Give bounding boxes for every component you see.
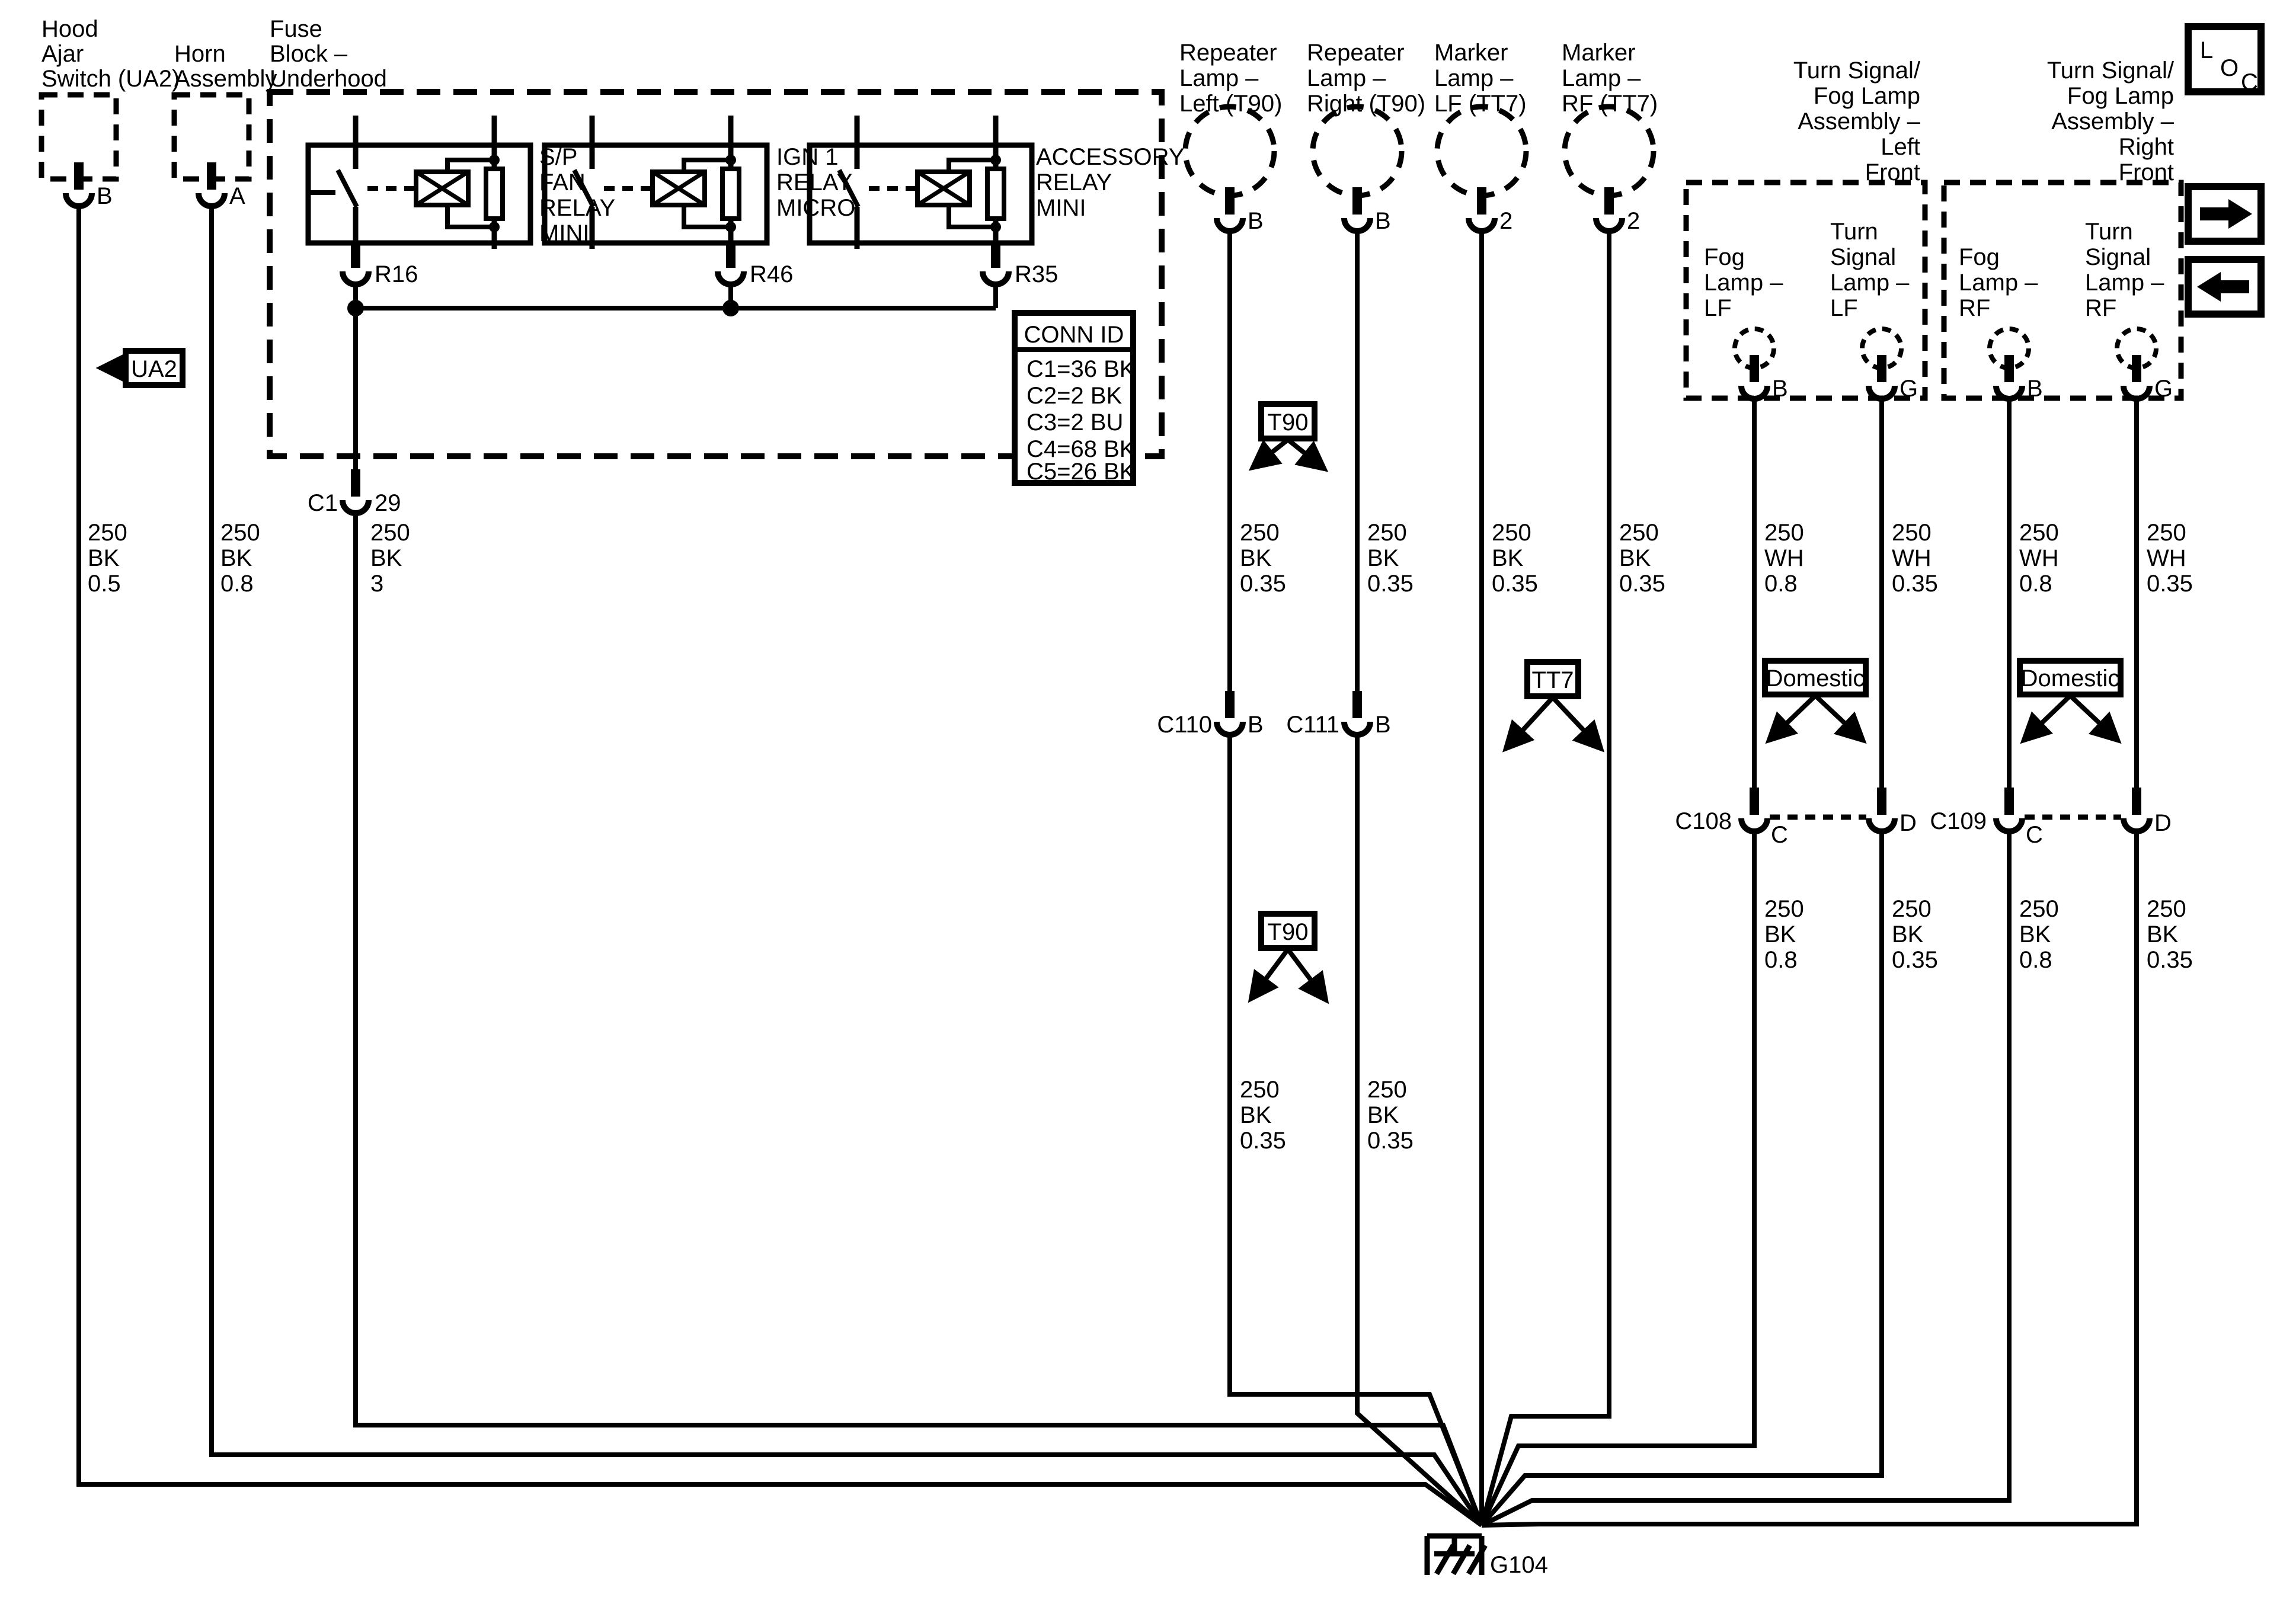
wire-label: 0.35: [2147, 571, 2193, 597]
table-header: CONN ID: [1024, 322, 1124, 348]
component-label: Lamp –: [1179, 65, 1259, 91]
wire-label: BK: [1367, 1102, 1399, 1128]
loc-letter-l: L: [2200, 37, 2213, 63]
loc-letter-c: C: [2241, 69, 2258, 95]
sub-turn-signal-lamp-rf: Turn Signal Lamp – RF G: [2085, 219, 2173, 402]
component-label: LF: [1704, 295, 1732, 321]
wire-label: WH: [1892, 545, 1932, 571]
pin-label: R16: [375, 261, 418, 287]
pin-label: G: [2154, 376, 2173, 402]
wire-label: BK: [2019, 921, 2051, 948]
pin-label: R46: [750, 261, 793, 287]
sub-fog-lamp-rf: Fog Lamp – RF B: [1959, 244, 2043, 402]
component-label: Lamp –: [1704, 270, 1783, 296]
wire-label: 250: [1764, 520, 1804, 546]
wire-label: 250: [220, 520, 260, 546]
connector-label: C109: [1930, 808, 1987, 834]
pin-label: B: [1248, 208, 1264, 234]
relay-label: RELAY: [539, 195, 615, 221]
wire-label: 250: [2019, 520, 2059, 546]
relay-label: RELAY: [1036, 169, 1112, 196]
callout-label: UA2: [131, 356, 177, 382]
relay-accessory: ACCESSORY RELAY MINI R35: [810, 116, 1184, 287]
wire-label: 250: [1892, 520, 1932, 546]
wire-label: BK: [2147, 921, 2179, 948]
component-label: Lamp –: [1830, 270, 1910, 296]
harness-label: TT7: [1531, 667, 1574, 693]
sub-turn-signal-lamp-lf: Turn Signal Lamp – LF G: [1830, 219, 1918, 402]
component-label: RF: [2085, 295, 2116, 321]
component-label: Fog Lamp: [1814, 83, 1920, 109]
component-label: Turn Signal/: [1793, 57, 1921, 84]
component-label: Right (T90): [1307, 91, 1425, 117]
component-label: Marker: [1562, 40, 1635, 66]
wire-label: 0.35: [1367, 571, 1414, 597]
component-label: Marker: [1434, 40, 1508, 66]
component-fuse-block-underhood: Fuse Block – Underhood S/P FAN RELAY MIN…: [270, 16, 1184, 485]
wire-label: 0.35: [2147, 947, 2193, 973]
wire-label: 0.5: [88, 571, 121, 597]
component-label: LF (TT7): [1434, 91, 1527, 117]
component-label: Lamp –: [2085, 270, 2164, 296]
pin-label: D: [2154, 810, 2172, 836]
pin-label: B: [97, 183, 113, 209]
wire-label: BK: [1619, 545, 1651, 571]
component-label: Turn Signal/: [2047, 57, 2175, 84]
wire-label: BK: [1764, 921, 1796, 948]
wire-label: 250: [1492, 520, 1531, 546]
wire-label: 250: [1764, 896, 1804, 922]
wire-label: BK: [1492, 545, 1524, 571]
component-label: Signal: [2085, 244, 2151, 270]
component-label: Left: [1881, 134, 1920, 160]
wire-labels-right-lower: 250 BK 0.8 250 BK 0.35 250 BK 0.8 250 BK…: [1764, 896, 2193, 973]
wire-label: 0.8: [1764, 571, 1798, 597]
table-row: C5=26 BK: [1027, 459, 1136, 485]
component-label: Lamp –: [1434, 65, 1514, 91]
harness-tag-domestic-left: Domestic: [1765, 661, 1866, 740]
wire-label: 250: [2019, 896, 2059, 922]
wire-label: BK: [1892, 921, 1924, 948]
pin-label: R35: [1015, 261, 1058, 287]
component-label: Turn: [1830, 219, 1878, 245]
connector-label: C110: [1157, 712, 1212, 738]
pin-label: G: [1900, 376, 1918, 402]
harness-label: Domestic: [2021, 665, 2120, 692]
relay-label: MICRO: [776, 195, 855, 221]
conn-id-table: CONN ID C1=36 BK C2=2 BK C3=2 BU C4=68 B…: [1015, 313, 1136, 485]
wire-label: 250: [1619, 520, 1659, 546]
component-label: Assembly –: [2051, 108, 2174, 135]
component-label: Horn: [174, 41, 226, 67]
component-label: Underhood: [270, 66, 387, 92]
ground-label: G104: [1490, 1552, 1548, 1578]
component-label: Assembly –: [1798, 108, 1920, 135]
wire-label: BK: [88, 545, 120, 571]
wire-label: 0.35: [1619, 571, 1665, 597]
component-horn-assembly: Horn Assembly A 250 BK 0.8: [174, 41, 277, 597]
component-label: Left (T90): [1179, 91, 1282, 117]
component-label: RF (TT7): [1562, 91, 1658, 117]
table-row: C3=2 BU: [1027, 409, 1123, 436]
wire-label: BK: [220, 545, 252, 571]
pin-label: A: [229, 183, 245, 209]
component-marker-lamp-rf: Marker Lamp – RF (TT7) 2 250 BK 0.35: [1562, 40, 1665, 597]
wire-label: 0.35: [1492, 571, 1538, 597]
wire-label: 250: [2147, 520, 2186, 546]
harness-tag-t90-upper: T90: [1253, 404, 1323, 468]
relay-label: MINI: [1036, 195, 1086, 221]
component-label: Front: [2119, 159, 2174, 185]
component-label: Fog: [1959, 244, 2000, 270]
component-label: Fog: [1704, 244, 1745, 270]
component-label: Repeater: [1179, 40, 1277, 66]
nav-arrow-right[interactable]: [2188, 187, 2261, 241]
component-hood-ajar-switch: Hood Ajar Switch (UA2) B 250 BK 0.5: [41, 16, 180, 597]
wire-label: 250: [88, 520, 127, 546]
harness-tag-domestic-right: Domestic: [2020, 661, 2121, 740]
pin-label: B: [2027, 376, 2043, 402]
pin-label: B: [1375, 208, 1391, 234]
pin-label: B: [1772, 376, 1788, 402]
pin-label: D: [1900, 810, 1917, 836]
wire-label: WH: [2019, 545, 2059, 571]
harness-tag-t90-lower: T90: [1252, 914, 1325, 999]
ua2-callout: UA2: [102, 351, 183, 385]
component-marker-lamp-lf: Marker Lamp – LF (TT7) 2 250 BK 0.35: [1434, 40, 1538, 597]
component-label: Lamp –: [1562, 65, 1641, 91]
wire-label: WH: [2147, 545, 2186, 571]
wire-label: BK: [1240, 1102, 1272, 1128]
wire-label: 0.35: [1240, 1128, 1286, 1154]
component-label: Fog Lamp: [2067, 83, 2174, 109]
component-label: Turn: [2085, 219, 2133, 245]
wiring-diagram: Hood Ajar Switch (UA2) B 250 BK 0.5 Horn…: [0, 0, 2296, 1610]
component-label: Switch (UA2): [41, 66, 180, 92]
wire-label: 0.8: [220, 571, 254, 597]
wire-label: 250: [1240, 520, 1280, 546]
component-label: Hood: [41, 16, 98, 42]
harness-label: T90: [1268, 919, 1309, 945]
wire-label: BK: [370, 545, 402, 571]
wire-label: 250: [1367, 1077, 1407, 1103]
component-repeater-lamp-left: Repeater Lamp – Left (T90) B 250 BK 0.35…: [1157, 40, 1286, 1154]
nav-arrow-left[interactable]: [2188, 260, 2261, 314]
wire-label: 0.35: [1367, 1128, 1414, 1154]
component-label: RF: [1959, 295, 1990, 321]
pin-label: 29: [375, 490, 401, 516]
loc-badge: L O C: [2188, 27, 2261, 95]
loc-letter-o: O: [2220, 55, 2239, 81]
table-row: C2=2 BK: [1027, 383, 1123, 409]
wire-label: 0.8: [2019, 947, 2052, 973]
component-label: LF: [1830, 295, 1858, 321]
connector-label: C111: [1286, 712, 1339, 738]
ground-icon: [1427, 1536, 1485, 1575]
connector-label: C1: [308, 490, 338, 516]
wire-label: BK: [1367, 545, 1399, 571]
component-label: Right: [2119, 134, 2174, 160]
connector-c1: C1 29 250 BK 3: [308, 469, 410, 597]
wire-label: 250: [370, 520, 410, 546]
pin-label: C: [1771, 822, 1788, 848]
component-label: Assembly: [174, 66, 277, 92]
ground-g104: G104: [1427, 1536, 1548, 1578]
wire-label: 250: [1892, 896, 1932, 922]
component-label: Lamp –: [1307, 65, 1386, 91]
component-label: Block –: [270, 41, 348, 67]
harness-label: T90: [1268, 409, 1309, 436]
pin-label: B: [1375, 712, 1391, 738]
sub-fog-lamp-lf: Fog Lamp – LF B: [1704, 244, 1788, 402]
wire-label: 250: [2147, 896, 2186, 922]
relay-sp-fan: S/P FAN RELAY MINI R16: [308, 116, 615, 287]
pin-label: 2: [1627, 208, 1640, 234]
harness-label: Domestic: [1766, 665, 1865, 692]
wire-label: 250: [1367, 520, 1407, 546]
component-label: Fuse: [270, 16, 322, 42]
wire-label: 0.35: [1240, 571, 1286, 597]
wire-label: 0.35: [1892, 571, 1938, 597]
harness-tag-tt7: TT7: [1507, 662, 1600, 748]
wire-label: WH: [1764, 545, 1804, 571]
wire-label: 0.8: [2019, 571, 2052, 597]
pin-label: 2: [1499, 208, 1512, 234]
wire-label: 250: [1240, 1077, 1280, 1103]
component-label: Signal: [1830, 244, 1896, 270]
relay-label: ACCESSORY: [1036, 144, 1184, 170]
component-label: Repeater: [1307, 40, 1405, 66]
component-label: Ajar: [41, 41, 84, 67]
wire-label: 3: [370, 571, 383, 597]
component-turnsignal-foglamp-assembly-right: Turn Signal/ Fog Lamp Assembly – Right F…: [1944, 57, 2181, 402]
component-label: Front: [1865, 159, 1920, 185]
wire-label: BK: [1240, 545, 1272, 571]
connector-label: C108: [1675, 808, 1732, 834]
wire-label: 0.35: [1892, 947, 1938, 973]
wire-labels-right-upper: 250 WH 0.8 250 WH 0.35 250 WH 0.8 250 WH…: [1764, 520, 2193, 597]
pin-label: B: [1248, 712, 1264, 738]
table-row: C1=36 BK: [1027, 356, 1136, 382]
component-label: Lamp –: [1959, 270, 2038, 296]
pin-label: C: [2026, 822, 2043, 848]
wire-label: 0.8: [1764, 947, 1798, 973]
component-turnsignal-foglamp-assembly-left: Turn Signal/ Fog Lamp Assembly – Left Fr…: [1686, 57, 1925, 402]
